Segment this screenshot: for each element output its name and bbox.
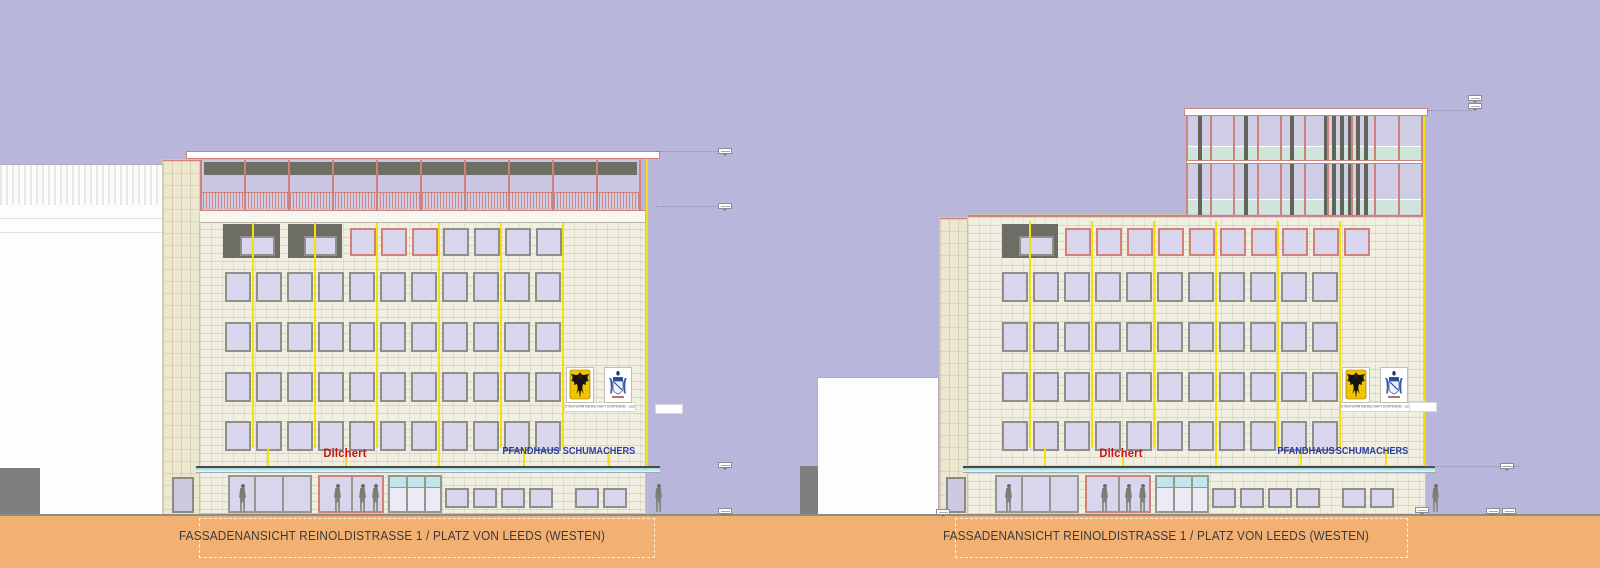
window [1157, 372, 1183, 402]
window [1095, 272, 1121, 302]
railing-post [552, 160, 554, 210]
window [240, 236, 275, 256]
extension-mullion [1421, 116, 1423, 215]
window [1002, 322, 1028, 352]
window [1188, 272, 1214, 302]
extension-mullion [1327, 116, 1329, 215]
crest-caption: STÄDTEPARTNERSCHAFT DORTMUND - LEEDS [1341, 403, 1411, 411]
railing-post [376, 160, 378, 210]
window [1033, 272, 1059, 302]
facade-joint-line [267, 448, 269, 466]
glazing-mullion [1049, 477, 1051, 511]
glazing-mullion [351, 477, 353, 511]
elevation-sheet: FASSADENANSICHT REINOLDISTRASSE 1 / PLAT… [0, 0, 1600, 568]
level-marker-icon [1502, 508, 1516, 514]
extension-column [1332, 116, 1336, 215]
window [1219, 272, 1245, 302]
window [1312, 372, 1338, 402]
window [318, 272, 344, 302]
level-marker-icon [1415, 507, 1429, 513]
window [443, 228, 469, 256]
window [1095, 322, 1121, 352]
window [536, 228, 562, 256]
window [287, 322, 313, 352]
railing-post [639, 160, 641, 210]
basement-window [473, 488, 497, 508]
window [1065, 228, 1091, 256]
window [504, 322, 530, 352]
dimension-leader-line [656, 206, 718, 207]
foreground-pillar-middle [800, 466, 818, 514]
adjacent-building-roof-band [0, 165, 163, 205]
facade-line [0, 232, 163, 233]
level-marker-icon [718, 508, 732, 514]
level-marker-icon [1468, 95, 1482, 101]
level-marker-icon [1468, 103, 1482, 109]
window [225, 372, 251, 402]
transom-glass [390, 477, 440, 488]
dimension-leader-line [656, 151, 718, 152]
railing-post [200, 160, 202, 210]
facade-line [0, 218, 163, 219]
extension-mullion [1374, 116, 1376, 215]
store-sign-dilchert: Dilchert [1099, 446, 1142, 460]
drawing-title: FASSADENANSICHT REINOLDISTRASSE 1 / PLAT… [179, 529, 605, 543]
pedestrian-figure [1138, 484, 1147, 512]
window [225, 421, 251, 451]
side-door [172, 477, 194, 513]
extension-column [1364, 116, 1368, 215]
leeds-crest-icon [1381, 368, 1407, 402]
window [1250, 272, 1276, 302]
foreground-wall-left [0, 468, 40, 514]
basement-window [445, 488, 469, 508]
window [442, 421, 468, 451]
window [1158, 228, 1184, 256]
basement-window [1342, 488, 1366, 508]
adjacent-building-middle [818, 378, 938, 514]
elevation-label-plate [656, 405, 682, 413]
facade-joint-line [1044, 448, 1046, 466]
window [318, 322, 344, 352]
roof-slab [1184, 108, 1428, 116]
dortmund-crest-icon [567, 368, 593, 402]
extension-mullion [1233, 116, 1235, 215]
window [1064, 322, 1090, 352]
level-marker-icon [936, 509, 950, 515]
window [380, 421, 406, 451]
door-panel [1157, 488, 1207, 511]
basement-window [575, 488, 599, 508]
window [1219, 372, 1245, 402]
facade-edge-joint-line [1423, 112, 1425, 466]
railing-post [508, 160, 510, 210]
railing-post [288, 160, 290, 210]
window [1033, 421, 1059, 451]
window [442, 322, 468, 352]
store-sign-pfandhaus: PFANDHAUS [1277, 446, 1334, 457]
facade-joint-line [1277, 221, 1279, 448]
store-sign-dilchert: Dilchert [323, 446, 366, 460]
glazing-mullion [1173, 477, 1175, 511]
window [1002, 421, 1028, 451]
pedestrian-figure [654, 484, 663, 512]
facade-joint-line [252, 221, 254, 448]
window [1250, 372, 1276, 402]
window [225, 272, 251, 302]
window [474, 228, 500, 256]
facade-joint-line [1029, 221, 1031, 448]
window [411, 272, 437, 302]
window [1157, 322, 1183, 352]
terrace-floor-slab [200, 210, 645, 223]
window [473, 372, 499, 402]
railing-post [420, 160, 422, 210]
extension-column [1244, 116, 1248, 215]
window [1126, 372, 1152, 402]
level-marker-icon [1486, 508, 1500, 514]
window [473, 421, 499, 451]
extension-mullion [1398, 116, 1400, 215]
window [380, 372, 406, 402]
storefront-canopy [963, 466, 1435, 473]
dimension-leader-line [1428, 110, 1472, 111]
facade-joint-line [1339, 221, 1341, 448]
window [1312, 322, 1338, 352]
window [1064, 372, 1090, 402]
extension-column [1356, 116, 1360, 215]
window [380, 322, 406, 352]
facade-joint-line [1215, 221, 1217, 448]
extension-mullion [1257, 116, 1259, 215]
basement-window [603, 488, 627, 508]
extension-column [1290, 116, 1294, 215]
window [1281, 272, 1307, 302]
basement-window [529, 488, 553, 508]
side-return-wall [163, 160, 200, 515]
extension-column [1340, 116, 1344, 215]
window [1344, 228, 1370, 256]
window [1281, 322, 1307, 352]
window [1250, 421, 1276, 451]
store-sign-pfandhaus: PFANDHAUS [502, 446, 559, 457]
window [411, 372, 437, 402]
window [256, 372, 282, 402]
extension-mullion [1304, 116, 1306, 215]
extension-mullion [1351, 116, 1353, 215]
store-sign-schumachers: SCHUMACHERS [1336, 446, 1409, 457]
basement-window [1240, 488, 1264, 508]
dimension-leader-line [1425, 466, 1519, 467]
railing-post [596, 160, 598, 210]
window [473, 322, 499, 352]
window [1282, 228, 1308, 256]
facade-joint-line [1153, 221, 1155, 448]
window [349, 322, 375, 352]
facade-joint-line [1215, 448, 1217, 466]
window [1251, 228, 1277, 256]
pedestrian-figure [1100, 484, 1109, 512]
basement-window [1268, 488, 1292, 508]
window [442, 372, 468, 402]
window [349, 372, 375, 402]
railing-post [332, 160, 334, 210]
roof-slab [186, 151, 660, 159]
window [504, 372, 530, 402]
window [1002, 372, 1028, 402]
railing-post [244, 160, 246, 210]
facade-joint-line [562, 221, 564, 448]
partnership-crest-panel: STÄDTEPARTNERSCHAFT DORTMUND - LEEDS [565, 368, 635, 412]
extension-mullion [1280, 116, 1282, 215]
facade-joint-line [1091, 221, 1093, 448]
window [1064, 272, 1090, 302]
window [225, 322, 251, 352]
window [350, 228, 376, 256]
glazing-mullion [1021, 477, 1023, 511]
window [1019, 236, 1054, 256]
pedestrian-figure [1431, 484, 1440, 512]
window [1002, 272, 1028, 302]
facade-edge-joint-line [646, 152, 648, 466]
transom-glass [1157, 477, 1207, 488]
window [256, 322, 282, 352]
extension-mullion [1186, 116, 1188, 215]
glazing-mullion [424, 477, 426, 511]
basement-window [501, 488, 525, 508]
side-door [946, 477, 966, 513]
crest-caption: STÄDTEPARTNERSCHAFT DORTMUND - LEEDS [565, 403, 635, 411]
basement-window [1212, 488, 1236, 508]
level-marker-icon [718, 148, 732, 154]
window [287, 421, 313, 451]
door-panel [390, 488, 440, 511]
pedestrian-figure [358, 484, 367, 512]
window [1312, 272, 1338, 302]
window [505, 228, 531, 256]
window [380, 272, 406, 302]
railing-post [464, 160, 466, 210]
drawing-title: FASSADENANSICHT REINOLDISTRASSE 1 / PLAT… [943, 529, 1369, 543]
extension-column [1198, 116, 1202, 215]
window [535, 322, 561, 352]
window [1313, 228, 1339, 256]
window [1157, 421, 1183, 451]
window [1220, 228, 1246, 256]
glazing-mullion [282, 477, 284, 511]
elevation-label-plate [1410, 403, 1436, 411]
window [256, 272, 282, 302]
window [535, 272, 561, 302]
window [287, 272, 313, 302]
window [318, 372, 344, 402]
adjacent-building-left [0, 165, 163, 514]
pedestrian-figure [1004, 484, 1013, 512]
window [1281, 372, 1307, 402]
basement-window [1370, 488, 1394, 508]
leeds-crest-icon [605, 368, 631, 402]
window [1096, 228, 1122, 256]
window [256, 421, 282, 451]
window [287, 372, 313, 402]
window [1189, 228, 1215, 256]
window [411, 421, 437, 451]
title-banner-variant-b: FASSADENANSICHT REINOLDISTRASSE 1 / PLAT… [955, 518, 1408, 558]
title-banner-variant-a: FASSADENANSICHT REINOLDISTRASSE 1 / PLAT… [199, 518, 655, 558]
facade-joint-line [376, 221, 378, 448]
pedestrian-figure [333, 484, 342, 512]
window [1127, 228, 1153, 256]
pedestrian-figure [1124, 484, 1133, 512]
window [1157, 272, 1183, 302]
window [1219, 421, 1245, 451]
partnership-crest-panel: STÄDTEPARTNERSCHAFT DORTMUND - LEEDS [1341, 368, 1411, 412]
window [1126, 272, 1152, 302]
window [411, 322, 437, 352]
window [1033, 372, 1059, 402]
window [381, 228, 407, 256]
window [535, 372, 561, 402]
store-sign-schumachers: SCHUMACHERS [563, 446, 636, 457]
window [1250, 322, 1276, 352]
window [1095, 372, 1121, 402]
level-marker-icon [718, 203, 732, 209]
glazing-mullion [1118, 477, 1120, 511]
storefront-canopy [196, 466, 660, 473]
window [1188, 322, 1214, 352]
window [1188, 421, 1214, 451]
window [504, 272, 530, 302]
level-marker-icon [718, 462, 732, 468]
window [304, 236, 337, 256]
facade-joint-line [438, 221, 440, 448]
window [1219, 322, 1245, 352]
window [1064, 421, 1090, 451]
facade-joint-line [438, 448, 440, 466]
window [442, 272, 468, 302]
facade-joint-line [500, 221, 502, 448]
facade-joint-line [314, 221, 316, 448]
glazing-mullion [254, 477, 256, 511]
pedestrian-figure [371, 484, 380, 512]
pedestrian-figure [238, 484, 247, 512]
window [473, 272, 499, 302]
window [349, 272, 375, 302]
window [1033, 322, 1059, 352]
extension-floor-slab [1186, 160, 1423, 164]
basement-window [1296, 488, 1320, 508]
extension-mullion [1210, 116, 1212, 215]
glazing-mullion [406, 477, 408, 511]
window [1188, 372, 1214, 402]
window [412, 228, 438, 256]
dortmund-crest-icon [1343, 368, 1369, 402]
window [1126, 322, 1152, 352]
glazing-mullion [1191, 477, 1193, 511]
